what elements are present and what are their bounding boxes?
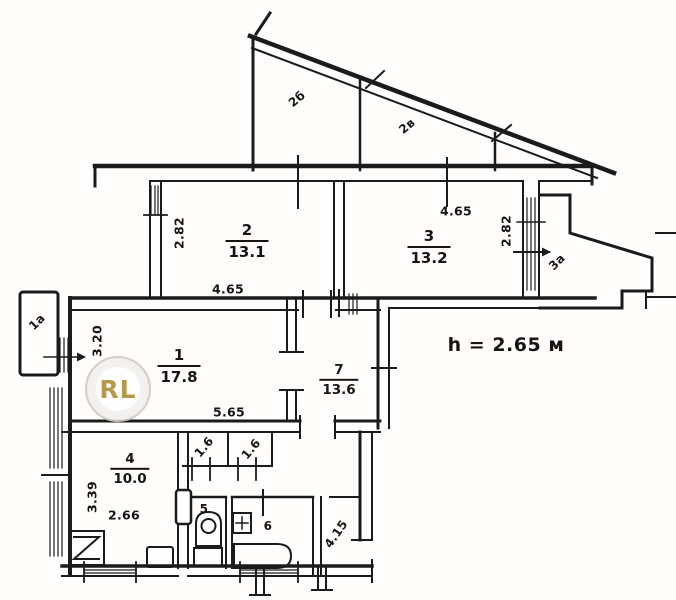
dim-room3-width: 4.65 bbox=[440, 204, 472, 219]
window-arrow-icon bbox=[77, 353, 86, 362]
watermark-logo: RL bbox=[85, 356, 151, 422]
room-6-number: 6 bbox=[264, 519, 273, 533]
ceiling-height-note: h = 2.65 м bbox=[448, 334, 565, 356]
dim-room4-height: 3.39 bbox=[85, 481, 100, 513]
dim-room3-height: 2.82 bbox=[499, 215, 514, 247]
room-1-area: 17.8 bbox=[157, 365, 200, 386]
room-3-area: 13.2 bbox=[407, 246, 450, 267]
room-2-area: 13.1 bbox=[225, 240, 268, 261]
room-3-number: 3 bbox=[407, 227, 450, 246]
floorplan-drawing bbox=[0, 0, 676, 600]
left-balcony-1a-outline bbox=[20, 292, 58, 375]
room-7-number: 7 bbox=[319, 362, 358, 379]
room-1-label: 1 17.8 bbox=[157, 346, 200, 386]
washbasin-icon bbox=[233, 513, 251, 533]
dim-room2-height: 2.82 bbox=[172, 217, 187, 249]
kitchen-sink-icon bbox=[147, 547, 173, 567]
right-balcony-3a-outline bbox=[540, 195, 676, 308]
room-1-number: 1 bbox=[157, 346, 200, 365]
dim-room2-width: 4.65 bbox=[212, 282, 244, 297]
room-5-number: 5 bbox=[200, 502, 209, 516]
dim-room4-width: 2.66 bbox=[108, 508, 140, 523]
window-arrow-icon bbox=[542, 248, 551, 257]
stove-icon bbox=[70, 531, 104, 565]
room-7-area: 13.6 bbox=[319, 379, 358, 398]
room-2-label: 2 13.1 bbox=[225, 221, 268, 261]
room-2-number: 2 bbox=[225, 221, 268, 240]
dim-room1-width: 5.65 bbox=[213, 405, 245, 420]
room-7-label: 7 13.6 bbox=[319, 362, 358, 398]
watermark-text: RL bbox=[99, 375, 136, 404]
toilet-icon bbox=[194, 512, 222, 566]
door-jamb-marks bbox=[192, 156, 447, 515]
floorplan-page: 2 13.1 3 13.2 1 17.8 7 13.6 4 10.0 5 6 2… bbox=[0, 0, 676, 600]
room-4-number: 4 bbox=[110, 451, 149, 468]
room-4-label: 4 10.0 bbox=[110, 451, 149, 487]
room-3-label: 3 13.2 bbox=[407, 227, 450, 267]
kitchen-door-icon bbox=[176, 490, 191, 524]
room-4-area: 10.0 bbox=[110, 468, 149, 487]
dim-room1-height: 3.20 bbox=[90, 325, 105, 357]
